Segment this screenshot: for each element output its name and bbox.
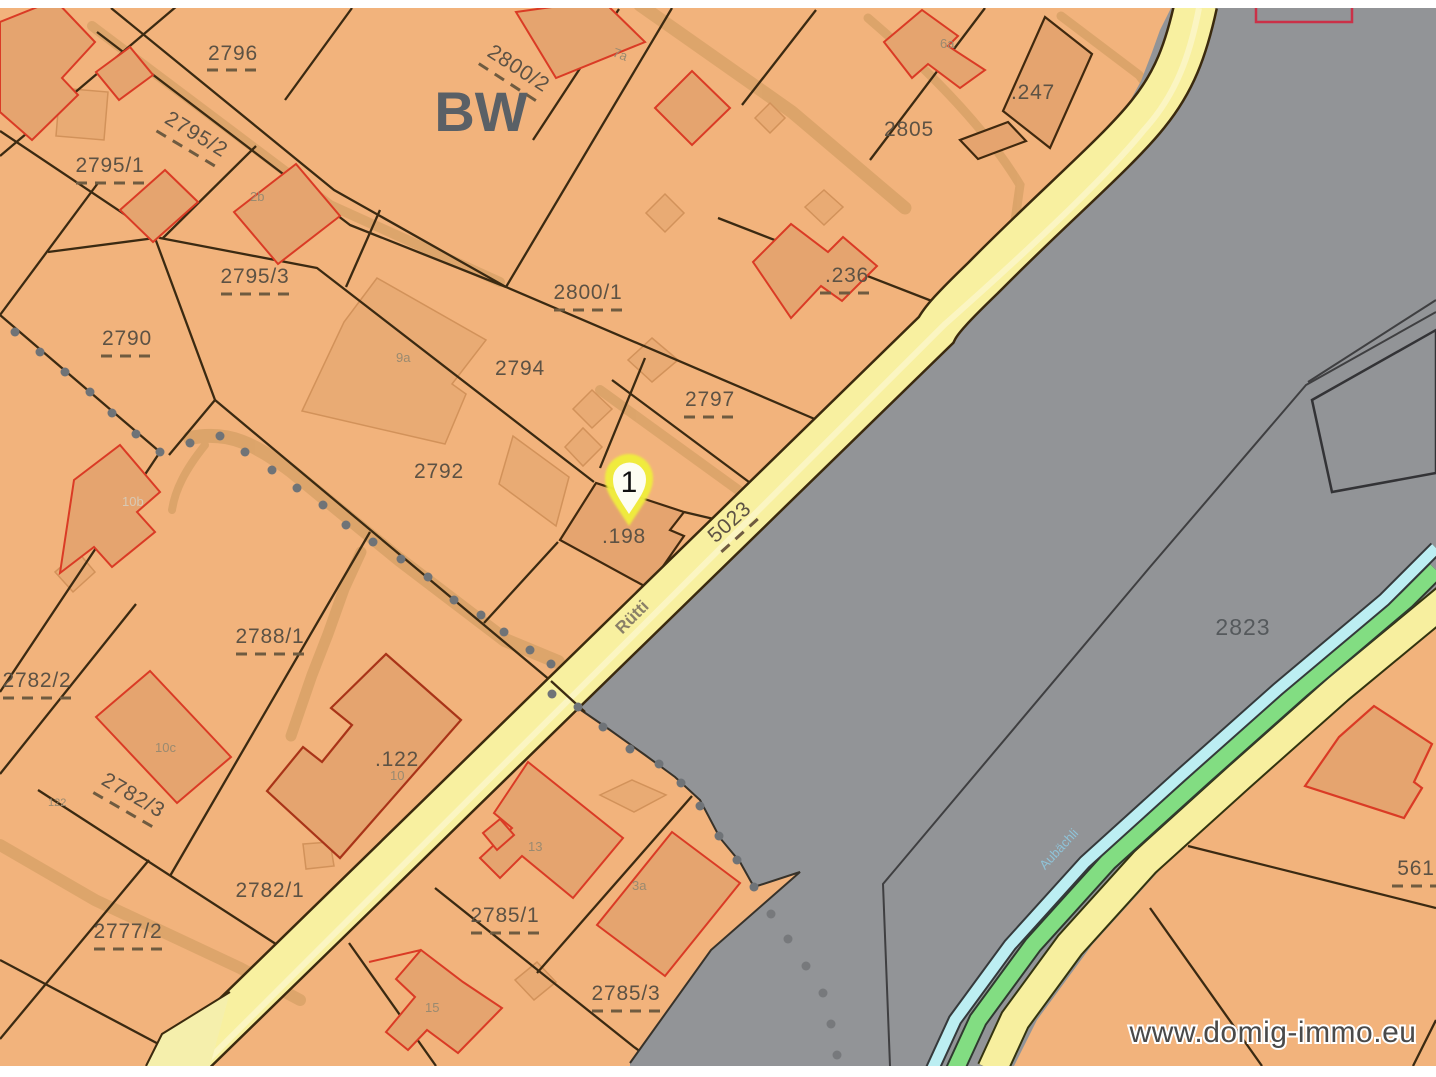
svg-text:2782/1: 2782/1 xyxy=(235,879,304,902)
svg-text:10: 10 xyxy=(390,768,404,783)
svg-text:2795/3: 2795/3 xyxy=(220,265,289,288)
svg-text:2785/1: 2785/1 xyxy=(470,904,539,927)
svg-text:2777/2: 2777/2 xyxy=(93,920,162,943)
svg-text:15: 15 xyxy=(425,1000,439,1015)
svg-text:2796: 2796 xyxy=(208,42,258,65)
svg-text:.198: .198 xyxy=(602,525,646,548)
svg-text:2790: 2790 xyxy=(102,327,152,350)
svg-text:2797: 2797 xyxy=(685,388,735,411)
svg-text:.236: .236 xyxy=(825,264,869,287)
svg-text:2788/1: 2788/1 xyxy=(235,625,304,648)
svg-text:2b: 2b xyxy=(250,189,264,204)
svg-text:2795/1: 2795/1 xyxy=(75,154,144,177)
svg-text:1: 1 xyxy=(621,466,638,499)
svg-text:9a: 9a xyxy=(396,350,411,365)
svg-text:10b: 10b xyxy=(122,494,144,509)
svg-text:2823: 2823 xyxy=(1215,614,1270,640)
svg-text:BW: BW xyxy=(434,80,527,143)
svg-text:10c: 10c xyxy=(155,740,176,755)
svg-text:3a: 3a xyxy=(632,878,647,893)
svg-text:.247: .247 xyxy=(1011,81,1055,104)
svg-text:6a: 6a xyxy=(940,36,955,51)
svg-text:13: 13 xyxy=(528,839,542,854)
svg-text:561: 561 xyxy=(1397,857,1434,880)
svg-text:www.domig-immo.eu: www.domig-immo.eu xyxy=(1129,1016,1417,1049)
svg-text:2785/3: 2785/3 xyxy=(591,982,660,1005)
svg-text:2805: 2805 xyxy=(884,118,934,141)
svg-text:2794: 2794 xyxy=(495,357,545,380)
svg-text:2800/1: 2800/1 xyxy=(553,281,622,304)
svg-text:2792: 2792 xyxy=(414,460,464,483)
svg-text:122: 122 xyxy=(48,797,66,809)
svg-text:2782/2: 2782/2 xyxy=(2,669,71,692)
